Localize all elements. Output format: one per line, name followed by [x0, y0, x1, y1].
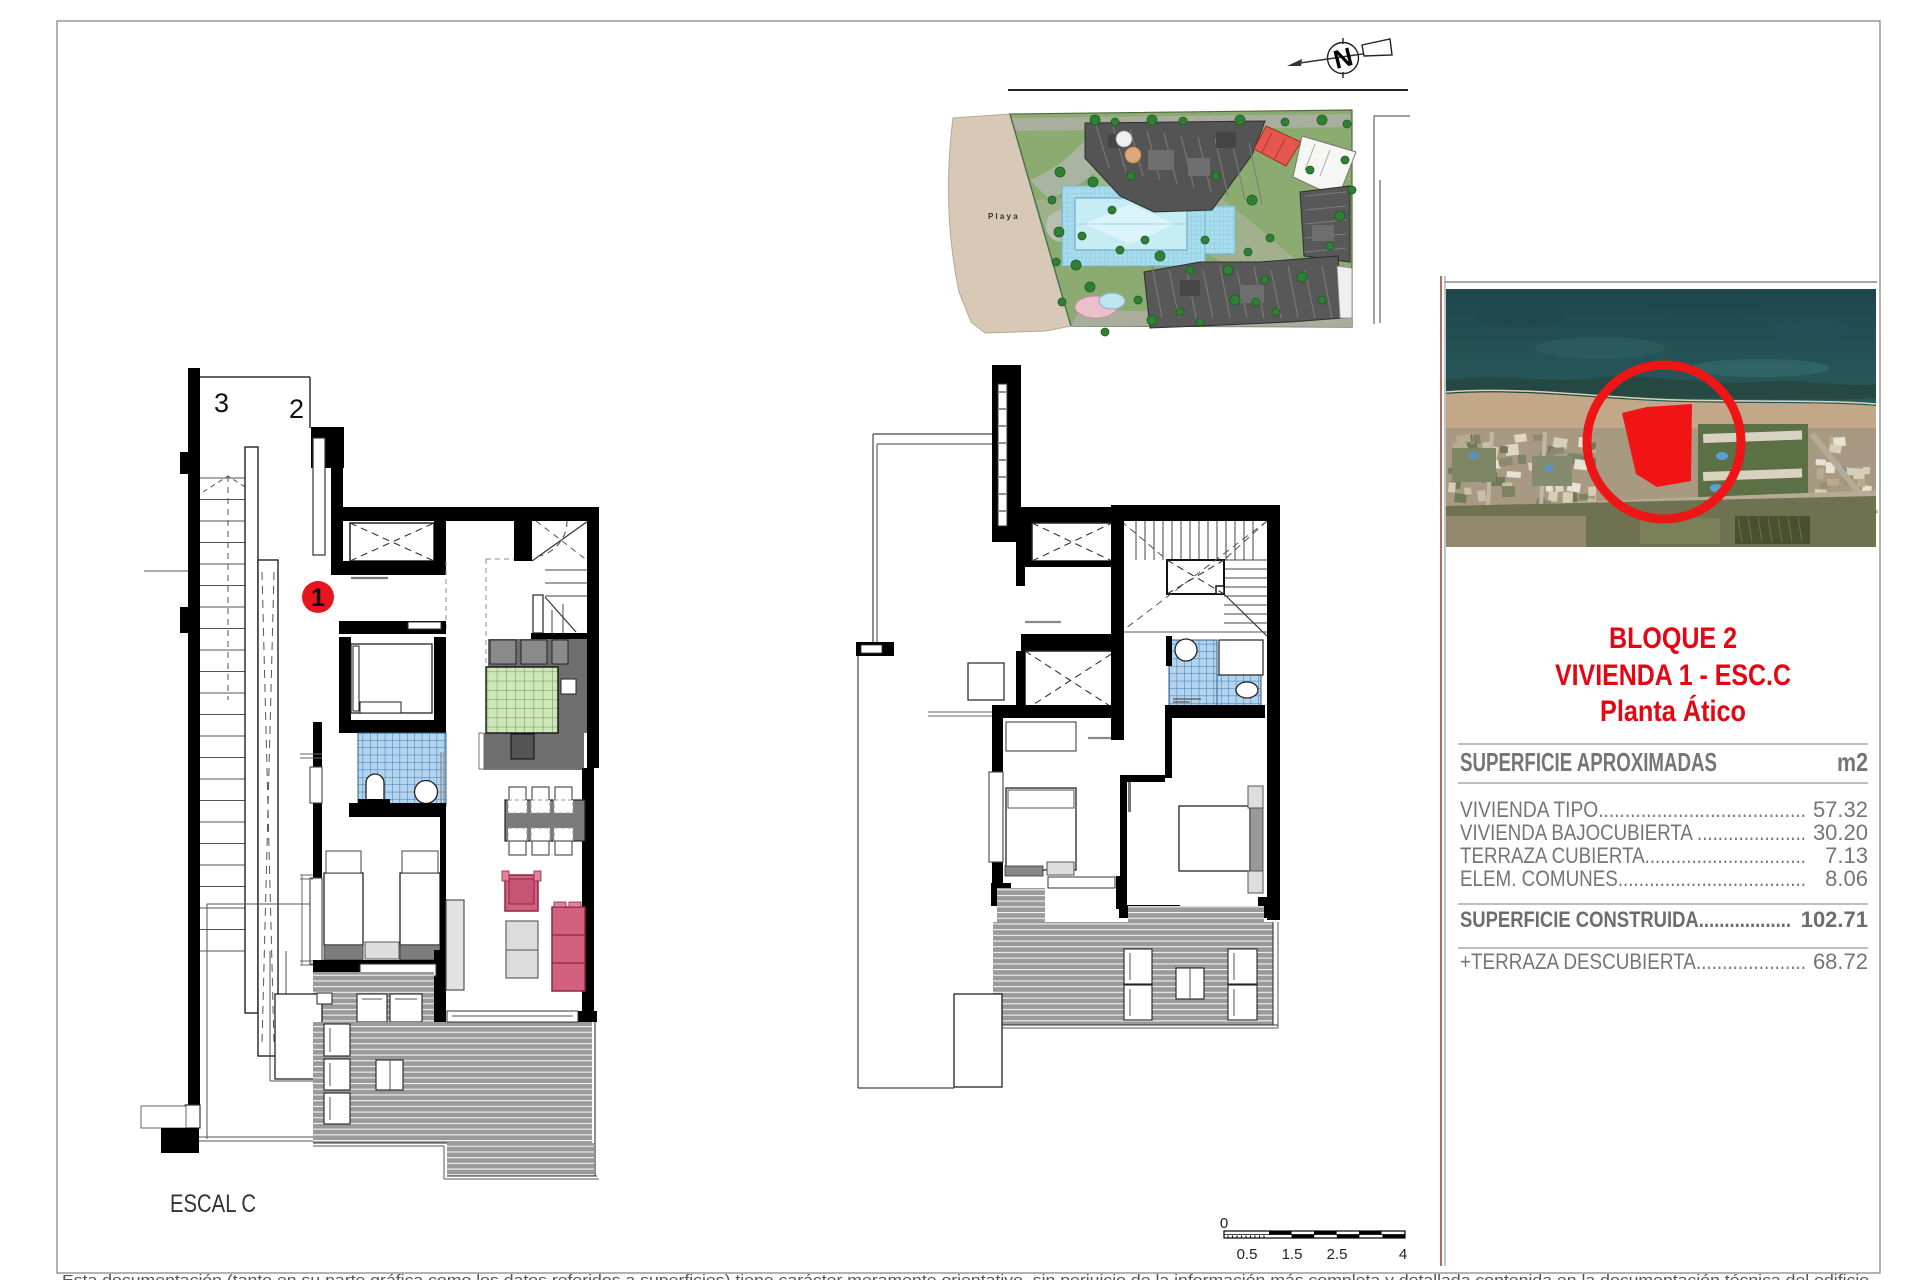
svg-text:VIVIENDA 1 - ESC.C: VIVIENDA 1 - ESC.C [1555, 659, 1791, 692]
svg-text:7.13: 7.13 [1825, 843, 1868, 868]
svg-text:ESCAL C: ESCAL C [170, 1190, 256, 1218]
svg-text:68.72: 68.72 [1813, 949, 1868, 974]
svg-text:2: 2 [289, 394, 304, 424]
svg-text:N: N [1330, 41, 1355, 75]
svg-text:BLOQUE 2: BLOQUE 2 [1609, 622, 1737, 655]
svg-text:TERRAZA CUBIERTA..............: TERRAZA CUBIERTA........................… [1460, 843, 1806, 868]
svg-text:0.5: 0.5 [1237, 1246, 1258, 1263]
svg-text:VIVIENDA TIPO.................: VIVIENDA TIPO...........................… [1460, 797, 1806, 822]
svg-text:m2: m2 [1837, 747, 1868, 777]
svg-text:102.71: 102.71 [1801, 907, 1868, 932]
svg-text:1.5: 1.5 [1282, 1246, 1303, 1263]
svg-text:2.5: 2.5 [1327, 1246, 1348, 1263]
svg-text:8.06: 8.06 [1825, 866, 1868, 891]
svg-text:VIVIENDA BAJOCUBIERTA ........: VIVIENDA BAJOCUBIERTA ..................… [1460, 820, 1806, 845]
svg-text:3: 3 [214, 388, 229, 418]
svg-text:30.20: 30.20 [1813, 820, 1868, 845]
svg-text:4: 4 [1399, 1246, 1407, 1263]
svg-text:P l a y a: P l a y a [988, 212, 1018, 221]
svg-text:ELEM. COMUNES.................: ELEM. COMUNES...........................… [1460, 866, 1806, 891]
svg-text:0: 0 [1220, 1215, 1228, 1232]
svg-text:1: 1 [311, 584, 325, 612]
svg-text:SUPERFICIE APROXIMADAS: SUPERFICIE APROXIMADAS [1460, 747, 1717, 777]
svg-text:Esta documentación (tanto en s: Esta documentación (tanto en su parte gr… [62, 1273, 1874, 1280]
svg-text:+TERRAZA DESCUBIERTA..........: +TERRAZA DESCUBIERTA....................… [1460, 949, 1806, 974]
svg-text:SUPERFICIE CONSTRUIDA.........: SUPERFICIE CONSTRUIDA.................. [1460, 907, 1791, 932]
svg-text:Planta Ático: Planta Ático [1600, 694, 1746, 728]
svg-text:57.32: 57.32 [1813, 797, 1868, 822]
